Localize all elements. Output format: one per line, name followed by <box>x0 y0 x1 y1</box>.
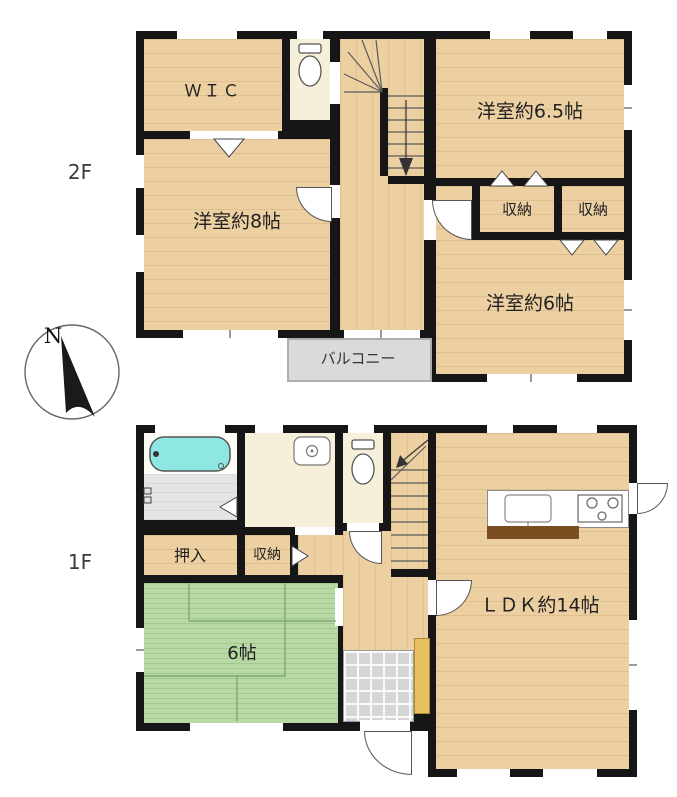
floor-plan-page: 2F 1F N ＷＩＣ 洋室約6.5帖 収納 収納 洋室約8帖 洋室約6帖 バル… <box>0 0 677 797</box>
back-door-arc <box>637 483 668 514</box>
room-label-western-6: 洋室約6帖 <box>486 289 574 316</box>
kitchen-counter-base <box>487 526 579 539</box>
window <box>487 425 513 433</box>
compass <box>25 325 119 419</box>
floor-label-2f: 2F <box>68 160 92 184</box>
window <box>190 723 283 731</box>
north-label: N <box>44 324 62 348</box>
room-label-western-8: 洋室約8帖 <box>193 207 281 234</box>
room-western-8 <box>144 139 330 330</box>
room-label-closet-2f-right: 収納 <box>578 199 608 220</box>
room-label-tatami-6: 6帖 <box>227 639 256 665</box>
window <box>557 425 597 433</box>
door-opening <box>190 131 278 139</box>
window <box>487 374 577 382</box>
shoe-cabinet <box>414 638 430 714</box>
door-opening <box>295 527 335 535</box>
back-door-opening <box>629 483 637 514</box>
room-toilet-1f <box>343 433 383 523</box>
window <box>136 235 144 272</box>
window-mullion <box>624 107 632 109</box>
window <box>136 155 144 188</box>
room-label-closet-2f-left: 収納 <box>502 199 532 220</box>
window <box>297 31 323 39</box>
front-door-opening <box>360 720 410 731</box>
hall-2f <box>340 39 424 330</box>
door-opening <box>428 580 436 615</box>
balcony-door-opening <box>344 330 420 338</box>
window <box>543 769 597 777</box>
window <box>177 31 237 39</box>
window <box>490 31 530 39</box>
window <box>348 425 374 433</box>
front-door-arc <box>364 731 412 775</box>
window-mullion <box>136 649 144 651</box>
window-mullion <box>629 664 637 666</box>
compass-needle <box>61 336 95 417</box>
door-opening <box>347 523 379 531</box>
room-washroom <box>245 433 335 527</box>
room-label-western-6-5: 洋室約6.5帖 <box>477 97 583 124</box>
window <box>255 425 283 433</box>
window-mullion <box>530 374 532 382</box>
room-label-ldk: ＬＤＫ約14帖 <box>480 591 599 618</box>
door-opening <box>335 588 343 626</box>
kitchen-counter <box>487 490 629 528</box>
room-label-wic: ＷＩＣ <box>185 77 242 102</box>
window-mullion <box>380 330 382 338</box>
window <box>155 425 225 433</box>
floor-label-1f: 1F <box>68 550 92 574</box>
room-toilet-2f <box>290 39 330 120</box>
room-label-balcony: バルコニー <box>321 348 396 369</box>
window-mullion <box>624 309 632 311</box>
window-mullion <box>229 330 231 338</box>
window <box>573 31 607 39</box>
bathroom-wet-floor <box>144 474 237 520</box>
genkan-entry <box>343 650 414 722</box>
window <box>457 769 510 777</box>
room-label-oshiire: 押入 <box>174 542 206 566</box>
room-label-closet-1f: 収納 <box>253 544 281 564</box>
door-opening <box>330 62 340 104</box>
